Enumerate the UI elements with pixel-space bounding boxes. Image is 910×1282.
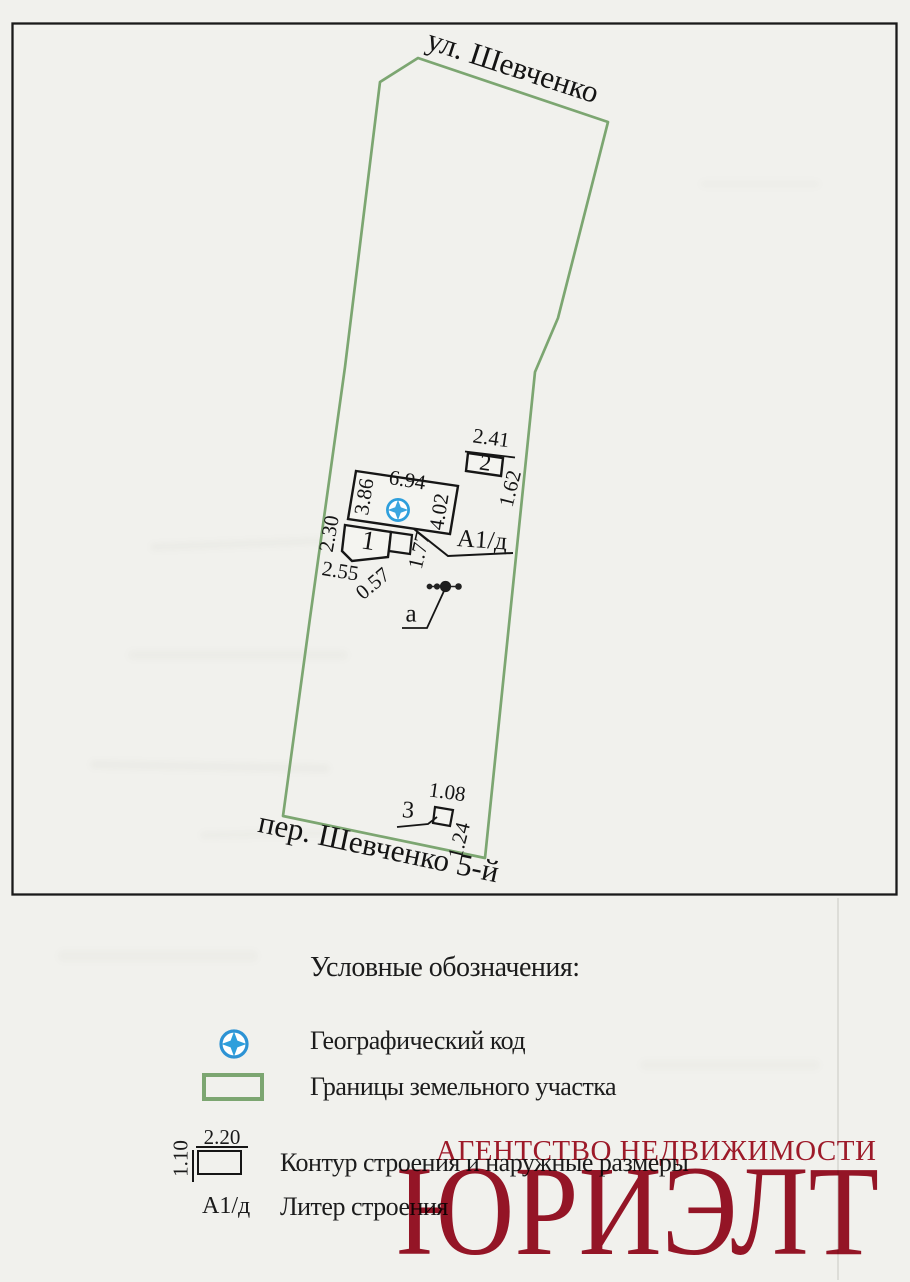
legend-title: Условные обозначения:	[310, 952, 580, 984]
parcel-boundary-icon	[202, 1073, 264, 1101]
legend-liter-symbol: А1/д	[202, 1193, 250, 1220]
building-contour-icon	[197, 1150, 242, 1175]
scan-artifact	[58, 950, 258, 962]
point-a-label: а	[405, 601, 416, 628]
dimension-label: 2.55	[320, 556, 360, 585]
building-3-number: 3	[401, 797, 415, 824]
street-label-top: ул. Шевченко	[423, 22, 604, 110]
point-a-marker	[427, 581, 462, 592]
legend-dimension-left: 1.10	[169, 1134, 194, 1184]
dimension-line	[196, 1146, 248, 1148]
legend-item-boundary: Границы земельного участка	[310, 1072, 616, 1102]
scan-artifact	[640, 1060, 820, 1070]
watermark-brand: ЮРИЭЛТ	[396, 1147, 879, 1275]
dimension-label: 2.30	[314, 513, 344, 553]
scanned-site-plan-page: { "colors": { "boundary_green": "#7ca671…	[0, 0, 910, 1280]
dimension-label: 2.41	[471, 423, 511, 452]
parcel-boundary	[283, 58, 608, 858]
site-plan: ул. Шевченко пер. Шевченко 5-й 1 6.94 3.…	[0, 0, 910, 905]
plan-frame	[13, 24, 897, 895]
geo-code-icon	[387, 499, 408, 520]
geo-code-icon	[218, 1028, 250, 1060]
building-1-liter-label: А1/д	[456, 525, 508, 555]
dimension-label: 1.08	[427, 777, 467, 806]
legend-item-geo-code: Географический код	[310, 1026, 525, 1056]
